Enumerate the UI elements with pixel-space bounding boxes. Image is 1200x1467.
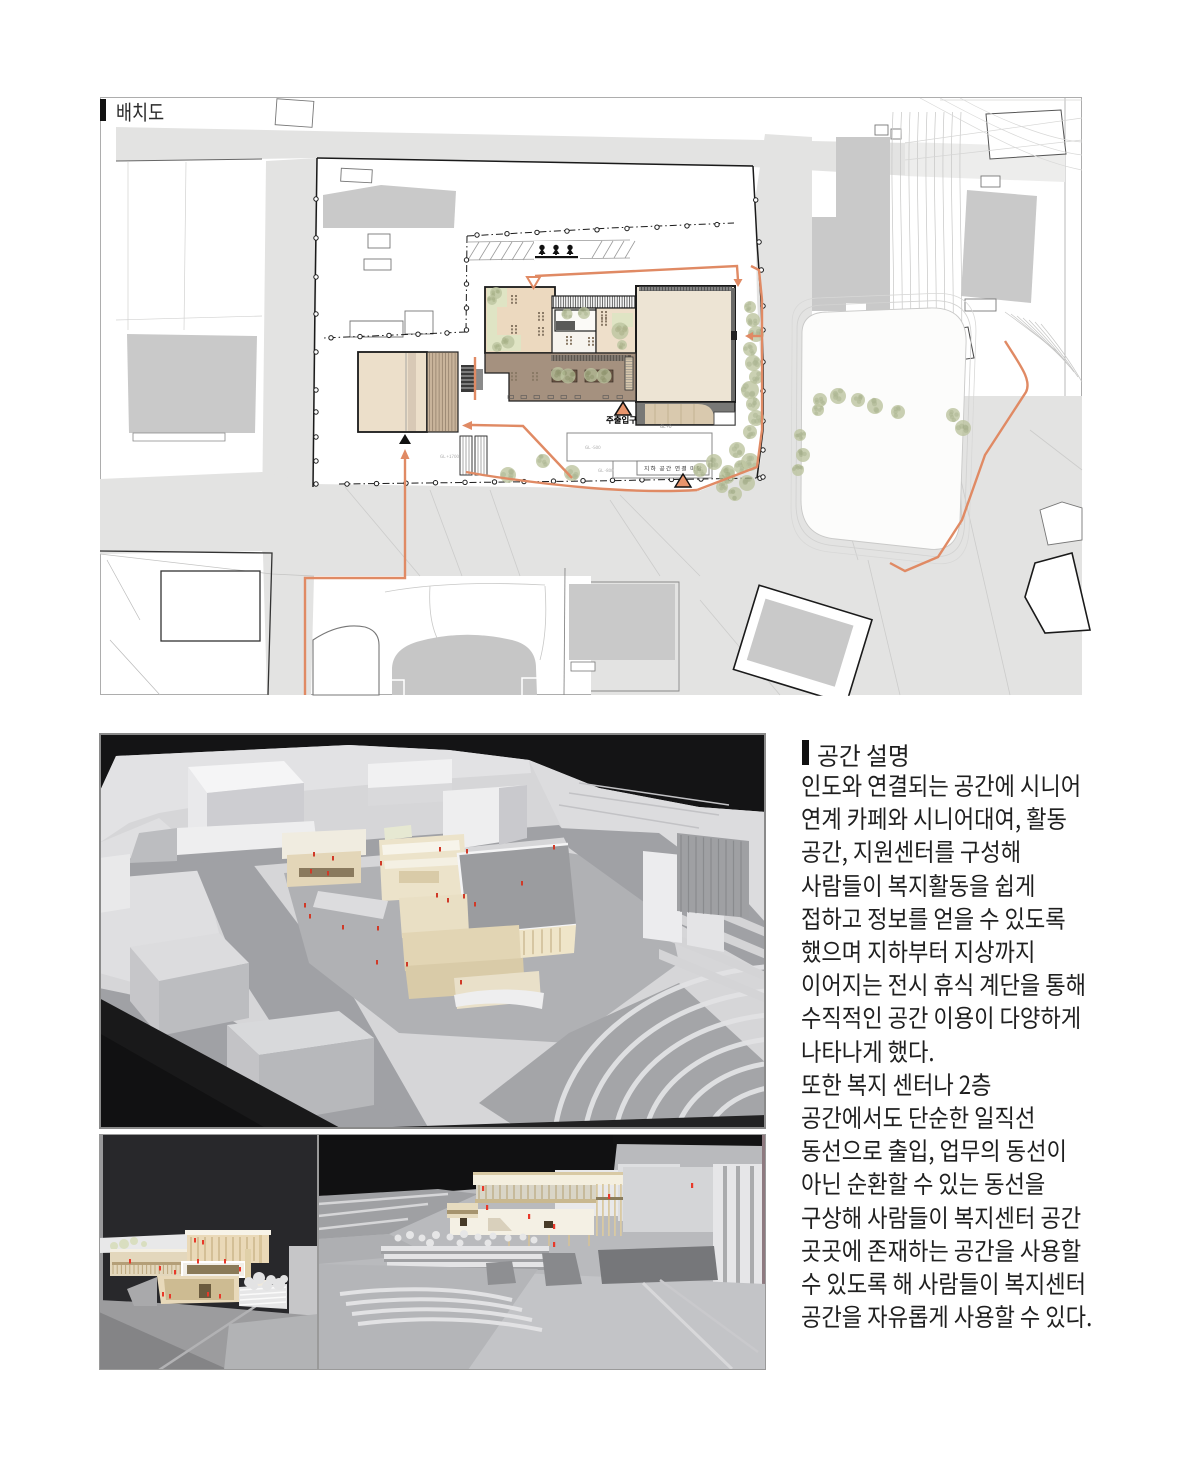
svg-text:GL -800: GL -800 (598, 468, 614, 474)
svg-text:주출입구: 주출입구 (606, 414, 637, 426)
svg-text:GL +1700: GL +1700 (440, 454, 460, 460)
svg-text:GL -500: GL -500 (585, 445, 601, 451)
svg-text:GL +0: GL +0 (660, 424, 672, 430)
